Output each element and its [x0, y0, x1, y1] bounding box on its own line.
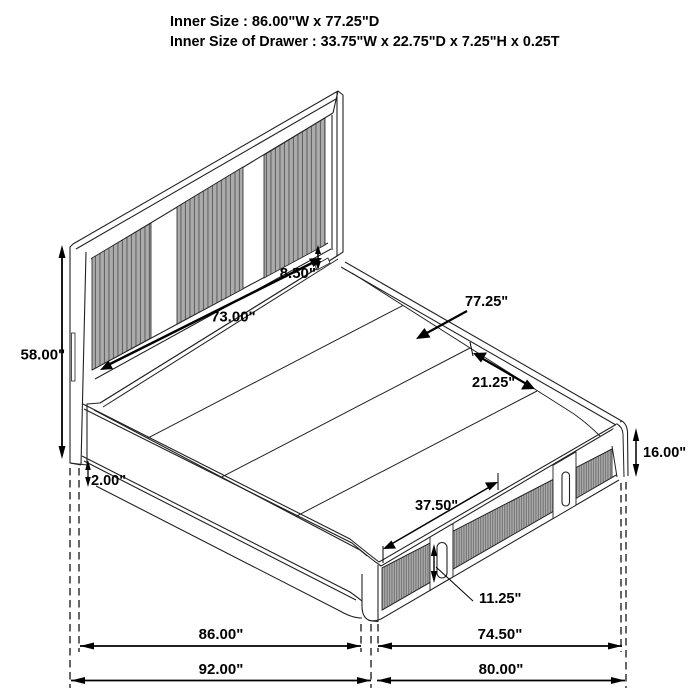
svg-text:8.50": 8.50" — [280, 265, 316, 282]
svg-text:11.25": 11.25" — [479, 591, 521, 607]
svg-text:37.50": 37.50" — [415, 498, 458, 514]
svg-text:21.25": 21.25" — [472, 375, 515, 391]
svg-text:Inner Size of Drawer : 33.75"W: Inner Size of Drawer : 33.75"W x 22.75"D… — [170, 34, 560, 50]
svg-text:73.00": 73.00" — [211, 309, 256, 326]
svg-text:77.25": 77.25" — [465, 294, 508, 310]
svg-text:74.50": 74.50" — [478, 626, 523, 643]
svg-text:Inner Size : 86.00"W x 77.25"D: Inner Size : 86.00"W x 77.25"D — [170, 14, 379, 30]
svg-text:92.00": 92.00" — [199, 661, 244, 678]
svg-text:2.00": 2.00" — [91, 473, 126, 489]
svg-text:16.00": 16.00" — [643, 445, 686, 461]
svg-text:80.00": 80.00" — [479, 661, 524, 678]
svg-text:86.00": 86.00" — [199, 626, 244, 643]
svg-text:58.00": 58.00" — [21, 347, 66, 364]
